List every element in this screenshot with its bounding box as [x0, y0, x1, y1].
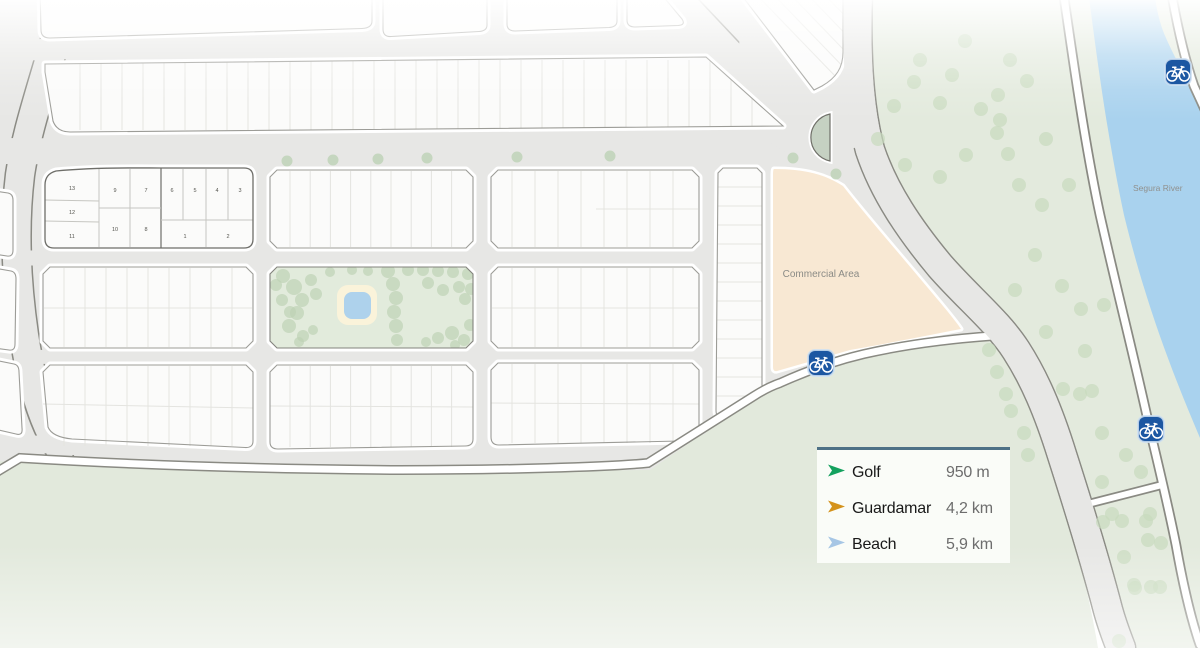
svg-text:11: 11 — [69, 234, 75, 240]
svg-text:Beach: Beach — [852, 536, 896, 553]
svg-text:9: 9 — [113, 188, 116, 194]
svg-text:4: 4 — [215, 188, 218, 194]
svg-text:7: 7 — [144, 188, 147, 194]
svg-text:2: 2 — [226, 234, 229, 240]
svg-text:5,9 km: 5,9 km — [946, 536, 993, 553]
svg-text:12: 12 — [69, 210, 75, 216]
svg-text:5: 5 — [193, 188, 196, 194]
svg-text:Guardamar: Guardamar — [852, 500, 932, 517]
svg-text:8: 8 — [144, 227, 147, 233]
svg-text:3: 3 — [238, 188, 241, 194]
svg-text:10: 10 — [112, 227, 118, 233]
svg-text:Golf: Golf — [852, 464, 881, 481]
svg-text:950 m: 950 m — [946, 464, 989, 481]
svg-text:4,2 km: 4,2 km — [946, 500, 993, 517]
svg-text:Commercial Area: Commercial Area — [783, 269, 860, 280]
svg-text:6: 6 — [170, 188, 173, 194]
svg-text:Segura River: Segura River — [1133, 183, 1183, 193]
svg-text:1: 1 — [183, 234, 186, 240]
svg-text:13: 13 — [69, 186, 75, 192]
